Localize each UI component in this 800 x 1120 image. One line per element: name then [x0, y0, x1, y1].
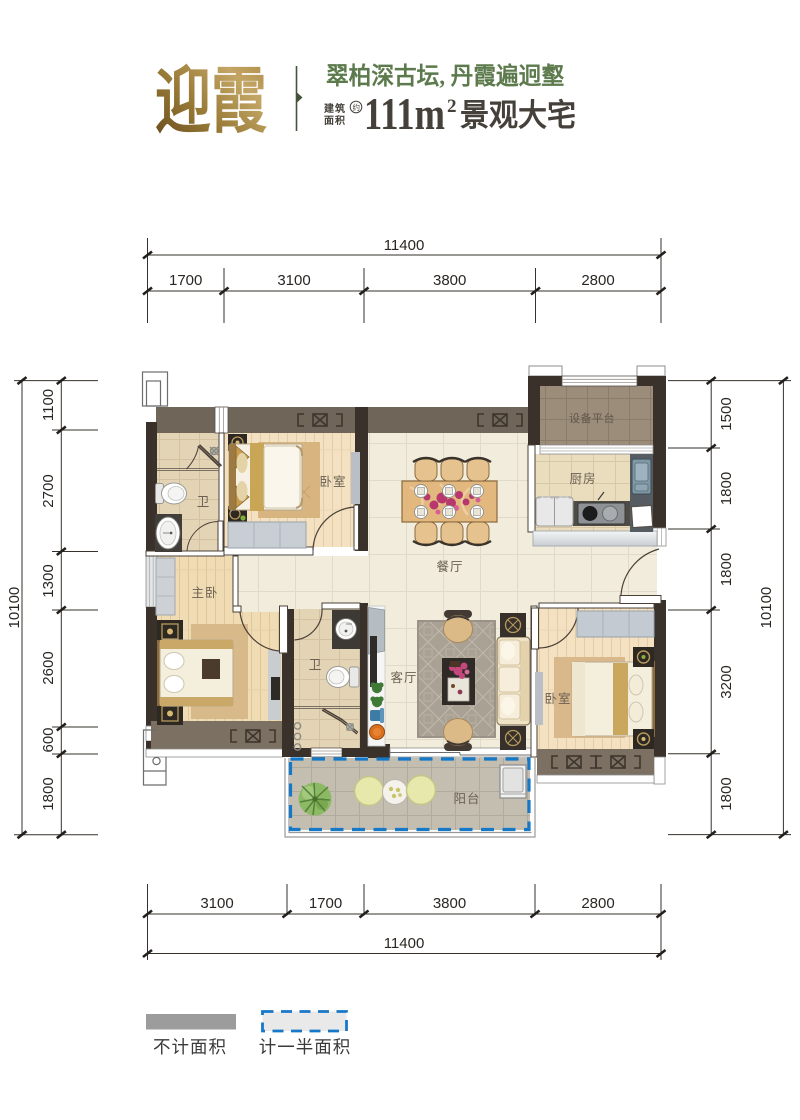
svg-text:建筑: 建筑: [323, 102, 346, 115]
svg-text:不计面积: 不计面积: [153, 1037, 227, 1057]
svg-text:11400: 11400: [384, 935, 425, 952]
svg-text:1800: 1800: [40, 777, 57, 810]
svg-text:1100: 1100: [40, 389, 57, 421]
svg-text:1500: 1500: [718, 397, 735, 430]
svg-text:1300: 1300: [40, 564, 57, 597]
svg-text:阳台: 阳台: [453, 791, 480, 806]
svg-text:主卧: 主卧: [191, 586, 218, 600]
svg-text:景观大宅: 景观大宅: [460, 98, 576, 133]
svg-text:2700: 2700: [40, 474, 57, 507]
svg-text:1800: 1800: [718, 472, 735, 505]
svg-text:2800: 2800: [581, 272, 614, 289]
svg-text:3100: 3100: [277, 272, 310, 289]
svg-text:厨房: 厨房: [569, 471, 596, 486]
svg-text:10100: 10100: [6, 587, 23, 629]
svg-text:卫: 卫: [197, 495, 210, 509]
svg-text:翠柏深古坛, 丹霞遍迥壑: 翠柏深古坛, 丹霞遍迥壑: [326, 62, 564, 90]
svg-text:约: 约: [353, 102, 361, 112]
svg-text:2800: 2800: [581, 895, 614, 912]
svg-text:卫: 卫: [309, 658, 322, 672]
svg-text:2: 2: [447, 96, 457, 117]
svg-text:2600: 2600: [40, 651, 57, 684]
svg-text:卧室: 卧室: [544, 691, 571, 706]
svg-text:3800: 3800: [433, 895, 466, 912]
svg-text:111m: 111m: [364, 88, 445, 139]
svg-text:3800: 3800: [433, 272, 466, 289]
svg-text:11400: 11400: [384, 237, 425, 254]
svg-text:1700: 1700: [169, 272, 202, 289]
svg-text:餐厅: 餐厅: [436, 559, 463, 574]
svg-text:客厅: 客厅: [390, 670, 417, 685]
svg-text:卧室: 卧室: [319, 474, 346, 489]
svg-text:1800: 1800: [718, 553, 735, 586]
svg-text:计一半面积: 计一半面积: [259, 1037, 352, 1057]
svg-text:迎霞: 迎霞: [155, 62, 267, 142]
svg-text:3100: 3100: [200, 895, 233, 912]
svg-text:设备平台: 设备平台: [569, 411, 615, 425]
svg-text:面积: 面积: [324, 114, 346, 127]
svg-text:1800: 1800: [718, 777, 735, 810]
svg-text:10100: 10100: [758, 587, 775, 629]
svg-text:600: 600: [40, 727, 57, 752]
svg-text:3200: 3200: [718, 665, 735, 698]
svg-text:1700: 1700: [309, 895, 342, 912]
